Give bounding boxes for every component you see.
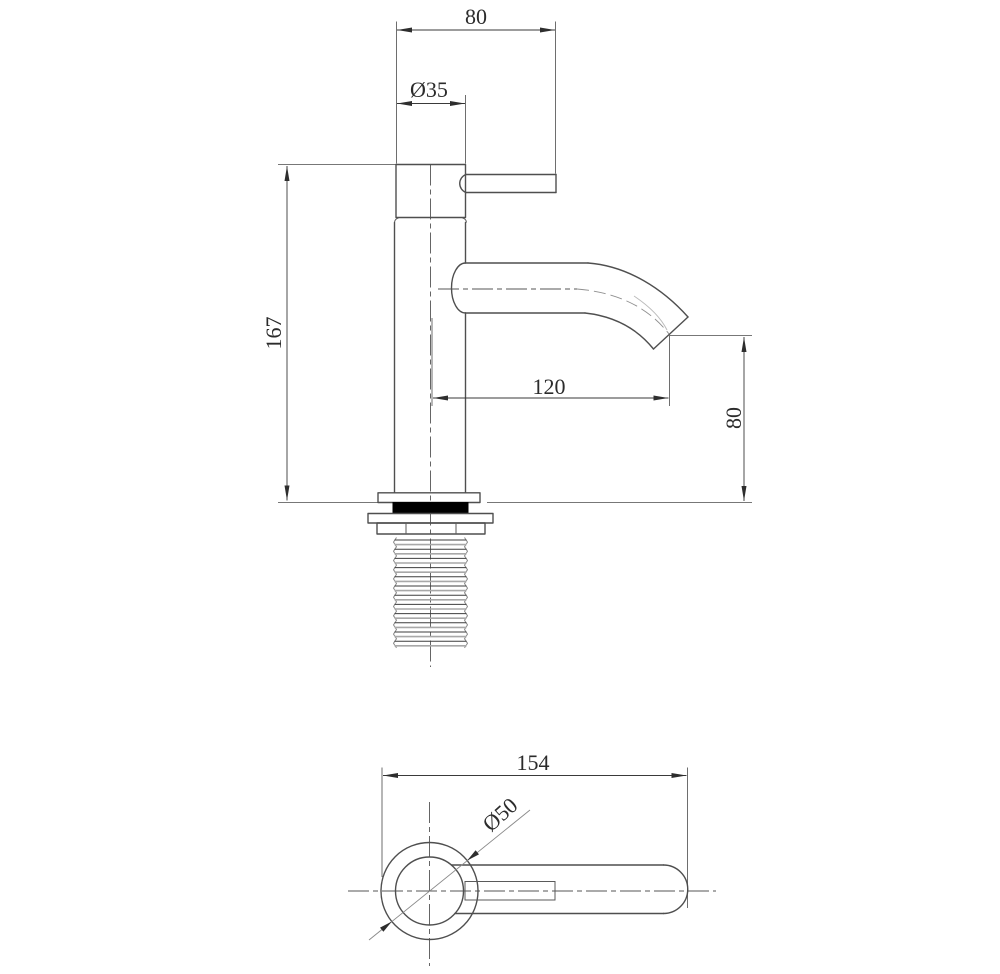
cap-chamfer-left — [395, 218, 399, 223]
spout-outlet-face — [654, 317, 689, 349]
dim-height: 167 — [261, 165, 396, 503]
dim-label: 80 — [721, 407, 746, 429]
cap-chamfer-right — [463, 218, 467, 223]
handle-end-cap — [664, 865, 688, 914]
lever-handle-side — [460, 175, 556, 193]
dim-label: Ø35 — [410, 77, 448, 102]
mounting-nut — [377, 523, 485, 534]
dim-label: 120 — [533, 374, 566, 399]
rubber-gasket — [393, 503, 468, 514]
spout-bottom-curve — [585, 313, 654, 349]
dim-label: 154 — [517, 750, 550, 775]
spout-top-curve — [588, 263, 688, 317]
spout-centerline-curve — [577, 289, 669, 334]
dim-label: 167 — [261, 317, 286, 350]
dim-spout-height: 80 — [487, 336, 752, 503]
dim-label: Ø50 — [478, 792, 523, 836]
flange-plate-upper — [378, 493, 480, 503]
spout-base-bulge — [452, 263, 466, 313]
spout — [438, 263, 688, 349]
plan-view: 154 Ø50 — [348, 750, 716, 966]
faucet-technical-drawing: 80 Ø35 167 120 80 — [0, 0, 1000, 974]
lever-handle-plan — [451, 865, 687, 914]
spout-inner-highlight — [634, 296, 667, 330]
side-view: 80 Ø35 167 120 80 — [261, 4, 752, 667]
leader-line — [369, 810, 530, 940]
body-column — [395, 223, 466, 493]
dim-overall-length: 154 — [382, 750, 688, 908]
dim-cap-diameter: Ø35 — [397, 77, 466, 164]
drawing-sheet: 80 Ø35 167 120 80 — [0, 0, 1000, 974]
dim-label: 80 — [465, 4, 487, 29]
leader-arrow-upper — [467, 850, 479, 860]
